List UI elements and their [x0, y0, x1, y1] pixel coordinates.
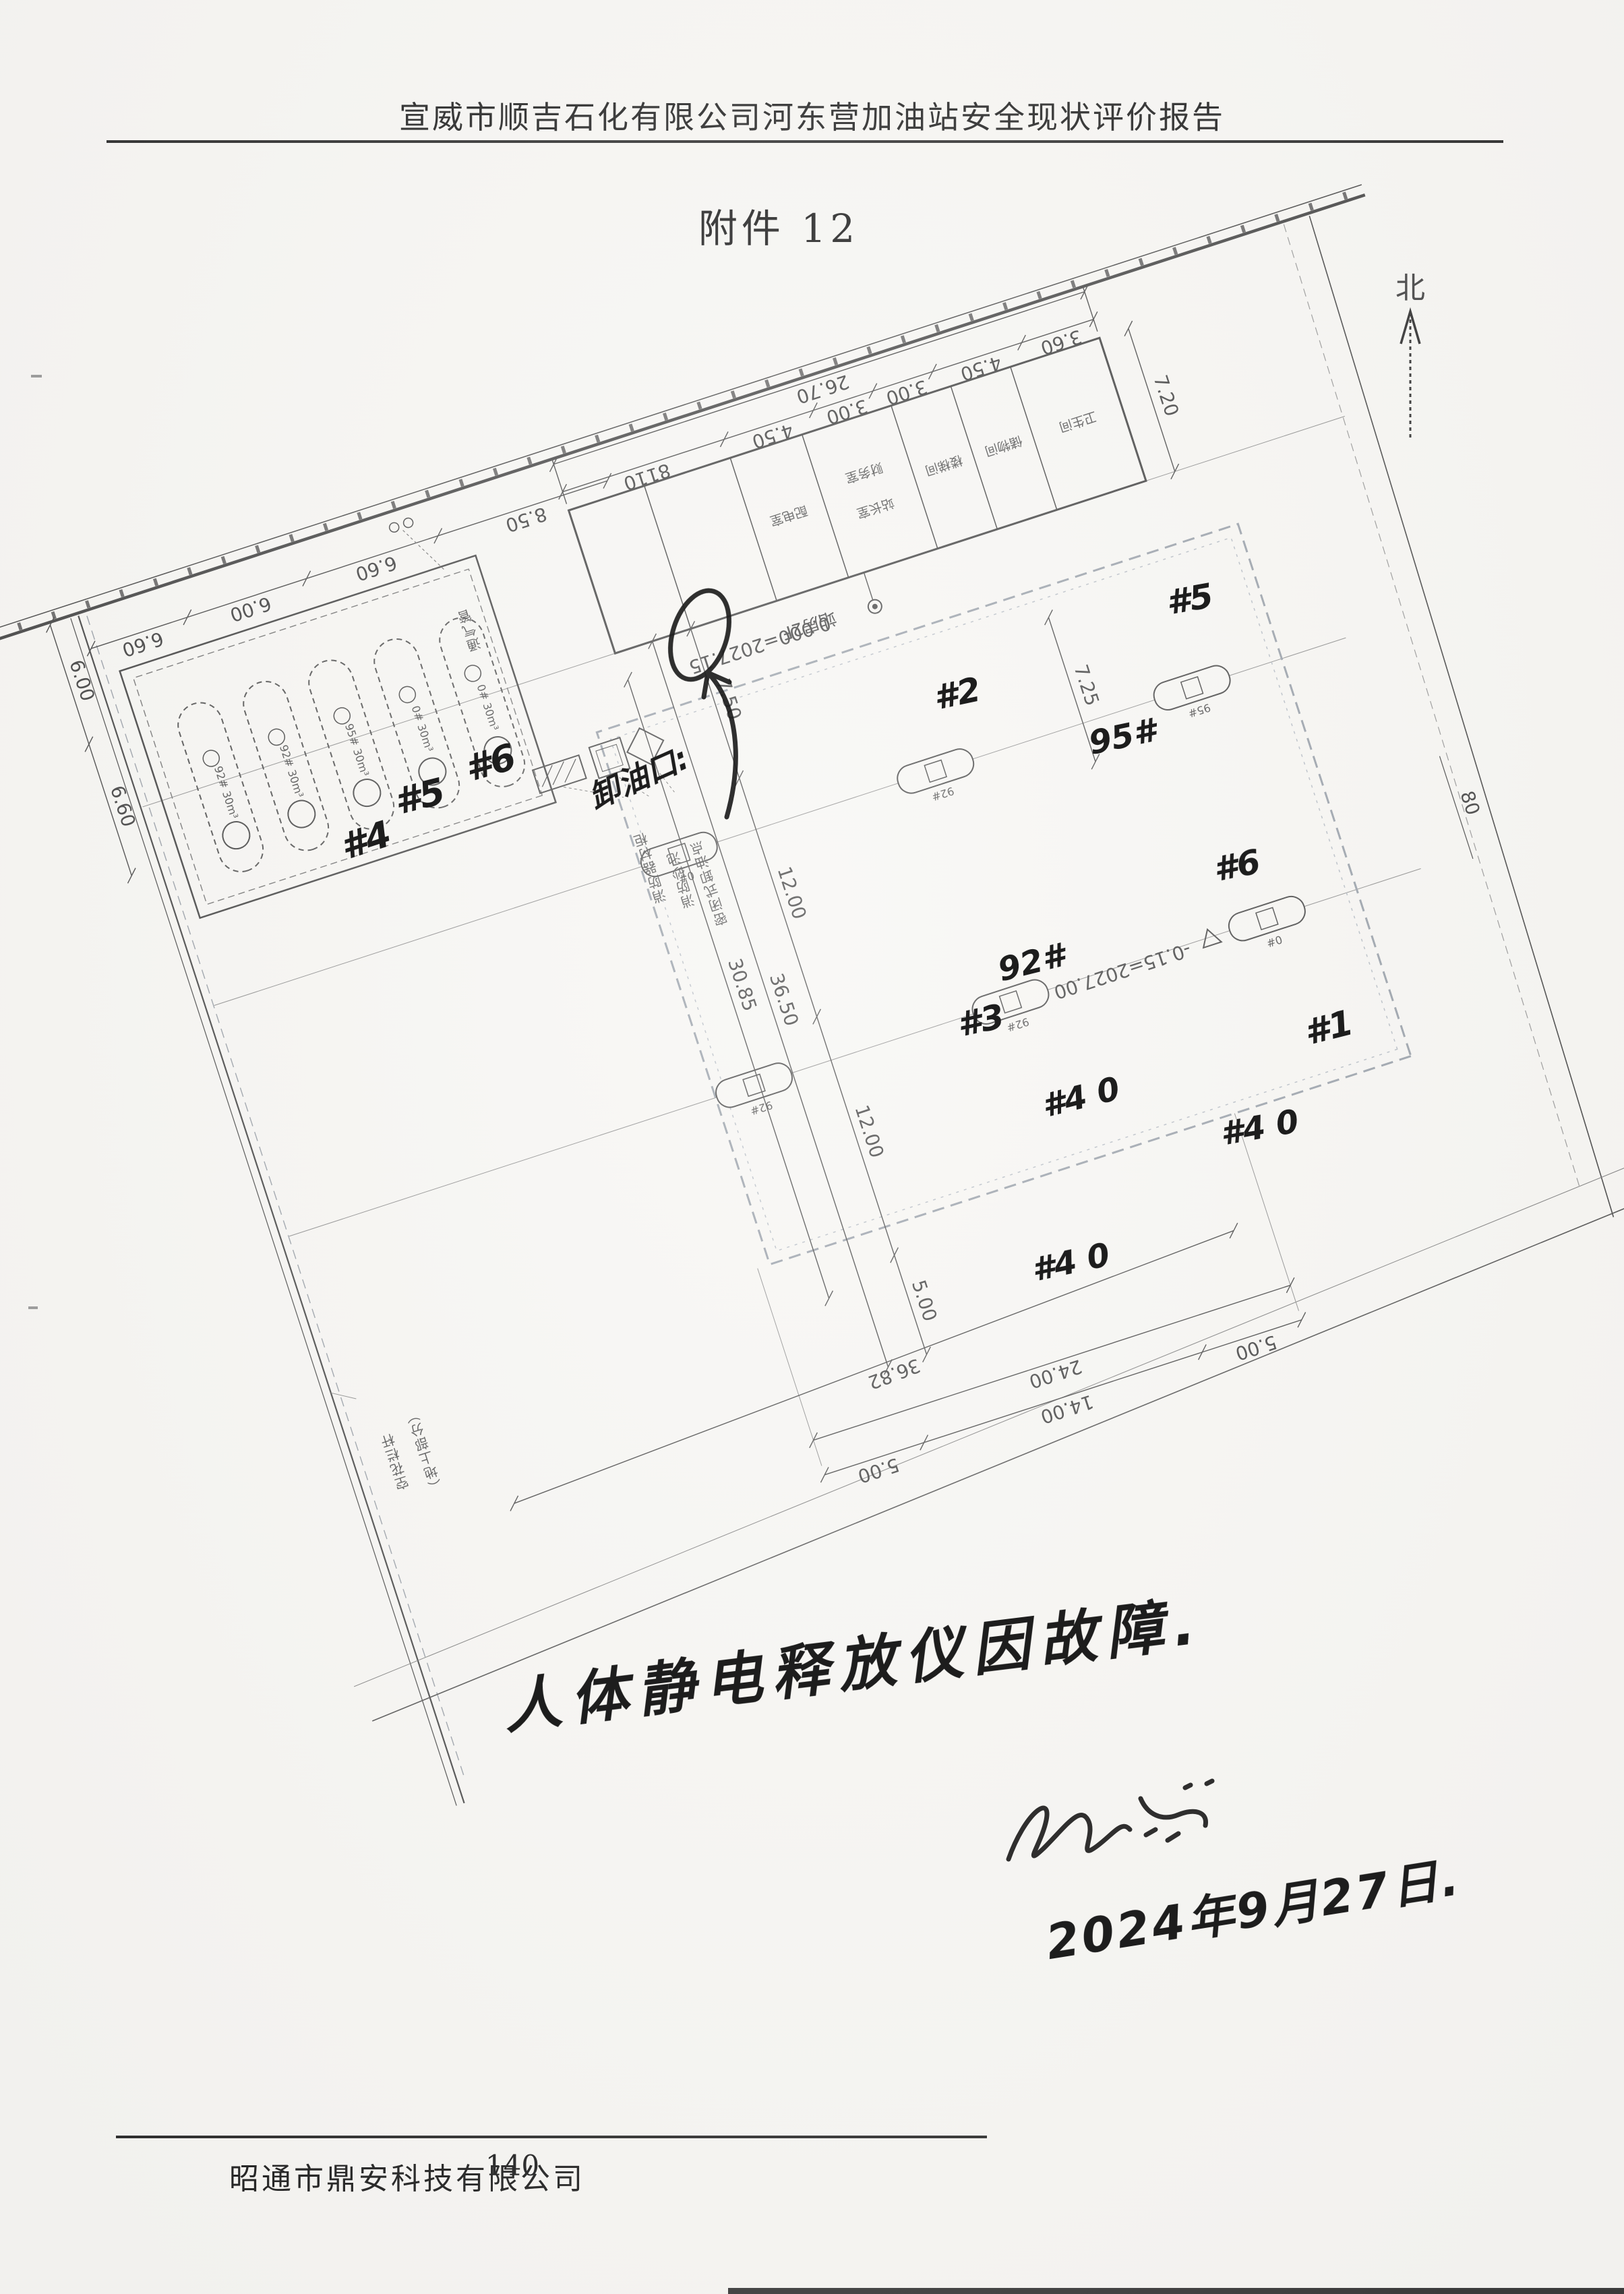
scan-edge-artifact [728, 2288, 1624, 2294]
handwritten-signature [1185, 1781, 1212, 1788]
dim-ticks [611, 621, 934, 1385]
tank-label: 0# 30m³ [475, 683, 502, 732]
dim-label: 4.50 [958, 351, 1004, 386]
page-number: 140 [472, 2149, 553, 2182]
room-label: 站长室 [855, 495, 896, 521]
scan-speck [28, 1306, 38, 1309]
footer-rule [116, 2136, 987, 2138]
dim-label: 12.00 [773, 864, 811, 922]
dim-label: 6.00 [227, 592, 274, 626]
site-plan-drawing: 卫生间 储物间 楼梯间 站长室 财务室 配电室 站房2F 3.60 4.50 3… [0, 115, 1624, 1832]
dim-label: 30.85 [723, 956, 761, 1014]
dim-label: 5.00 [855, 1453, 901, 1488]
station-building [569, 338, 1146, 653]
handwritten-signature [1141, 1799, 1206, 1840]
tank-label: 92# 30m³ [277, 744, 306, 799]
dim-label: 5.00 [907, 1277, 942, 1324]
dim-label: 3.60 [1037, 325, 1084, 359]
canopy-dim-labels: 5.00 14.00 5.00 24.00 [843, 1296, 1280, 1488]
room-label: 楼梯间 [924, 452, 965, 479]
tank-farm: 0# 30m³ 0# 30m³ 95# 30m³ 92# 30m³ 92# 30… [120, 555, 556, 918]
dim-label: 6.60 [119, 627, 166, 661]
dispenser: 0# [1226, 893, 1314, 960]
dispensers: 0# 92# 92# 95# 92# 0# [638, 662, 1314, 1126]
dim-label: 4.50 [750, 419, 796, 453]
room-label: 储物间 [983, 433, 1024, 459]
north-label: 北 [1395, 271, 1425, 305]
dim-label: 24.00 [1027, 1355, 1085, 1393]
tank-label: 95# 30m³ [342, 722, 371, 778]
vent-pipe-label: 通气管 [455, 606, 484, 654]
forecourt-dim-chain [611, 621, 934, 1385]
tank-label: 0# 30m³ [409, 704, 436, 753]
dim-label: 80 [1455, 788, 1484, 818]
dispenser: 92# [713, 1060, 801, 1126]
room-label: 财务室 [843, 460, 884, 486]
room-labels: 卫生间 储物间 楼梯间 站长室 财务室 配电室 站房2F [740, 392, 1133, 643]
tank-label: 92# 30m³ [212, 764, 241, 820]
dispenser: 92# [894, 746, 982, 812]
building-dim-labels: 3.60 4.50 3.00 3.00 4.50 8110 26.70 [612, 297, 1085, 495]
elevation-minus: -0.15=2027.00 [1050, 926, 1224, 1003]
room-label: 卫生间 [1057, 409, 1098, 435]
dispenser-label: 0# [1265, 933, 1284, 950]
dim-label: 7.50 [712, 676, 746, 723]
dim-label: 6.60 [353, 551, 399, 586]
vent-pipe: 通气管 [388, 508, 485, 665]
dim-label: 3.00 [883, 375, 930, 410]
handwritten-date: 2024年9月27日. [1041, 1840, 1466, 1973]
elevation-label: 0.000=2027.15 [686, 611, 834, 678]
scanned-report-page: 宣威市顺吉石化有限公司河东营加油站安全现状评价报告 附件 12 北 [0, 0, 1624, 2294]
tank: 92# 30m³ [173, 697, 269, 878]
dim-label: 3.00 [824, 394, 870, 429]
dim-label: 12.00 [850, 1102, 888, 1160]
elevation-label: -0.15=2027.00 [1051, 938, 1194, 1004]
scan-speck [31, 375, 42, 378]
dim-label: 8.50 [503, 502, 549, 537]
railing-label-1: 空花栏杆 [379, 1430, 413, 1492]
railing-label: 空花栏杆 （地上部分） [331, 1368, 446, 1515]
handwritten-signature [1009, 1808, 1130, 1859]
handwritten-mark: #5 [1163, 576, 1216, 622]
dim-label: 7.25 [1069, 662, 1104, 708]
room-label: 配电室 [768, 502, 809, 529]
dispenser: 95# [1150, 662, 1238, 729]
dim-label: 36.82 [865, 1354, 924, 1394]
tank: 95# 30m³ [303, 655, 400, 835]
tank: 92# 30m³ [238, 675, 334, 856]
document-header: 宣威市顺吉石化有限公司河东营加油站安全现状评价报告 [0, 93, 1624, 138]
dim-label: 7.20 [1149, 372, 1184, 419]
dim-label: 36.50 [765, 971, 803, 1029]
